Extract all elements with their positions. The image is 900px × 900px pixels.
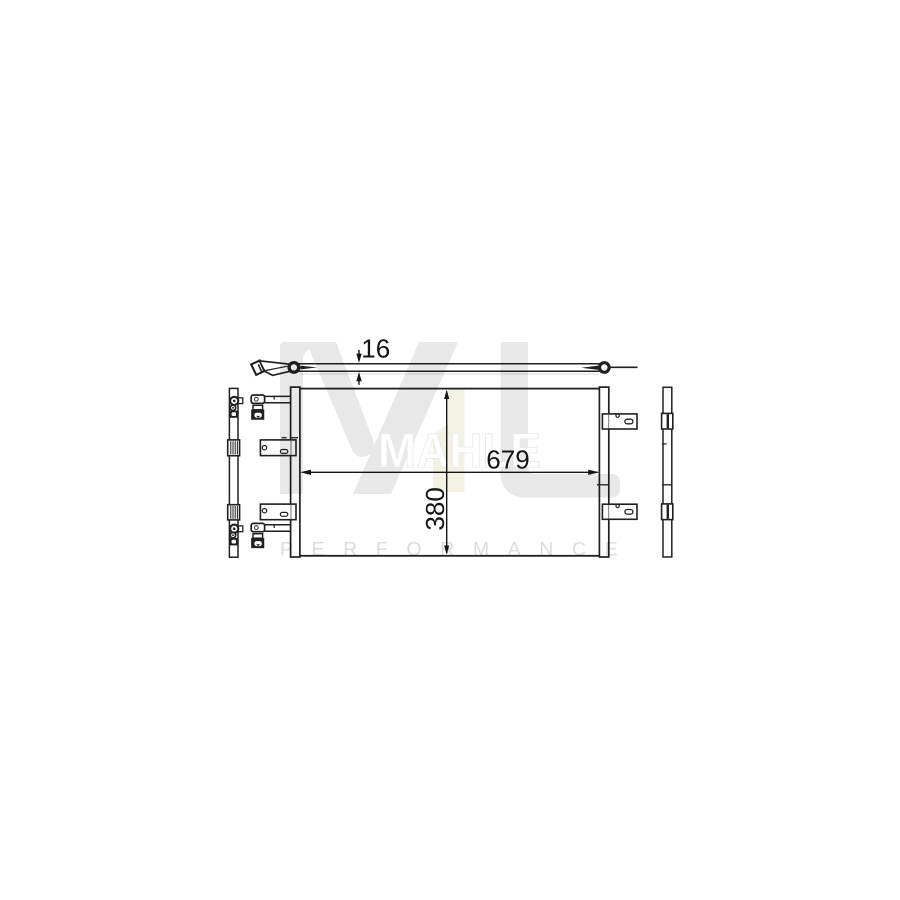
- svg-text:PERFORMANCE: PERFORMANCE: [280, 539, 636, 561]
- svg-text:380: 380: [420, 487, 450, 530]
- svg-text:MAHLE: MAHLE: [378, 425, 541, 478]
- svg-text:16: 16: [361, 333, 390, 363]
